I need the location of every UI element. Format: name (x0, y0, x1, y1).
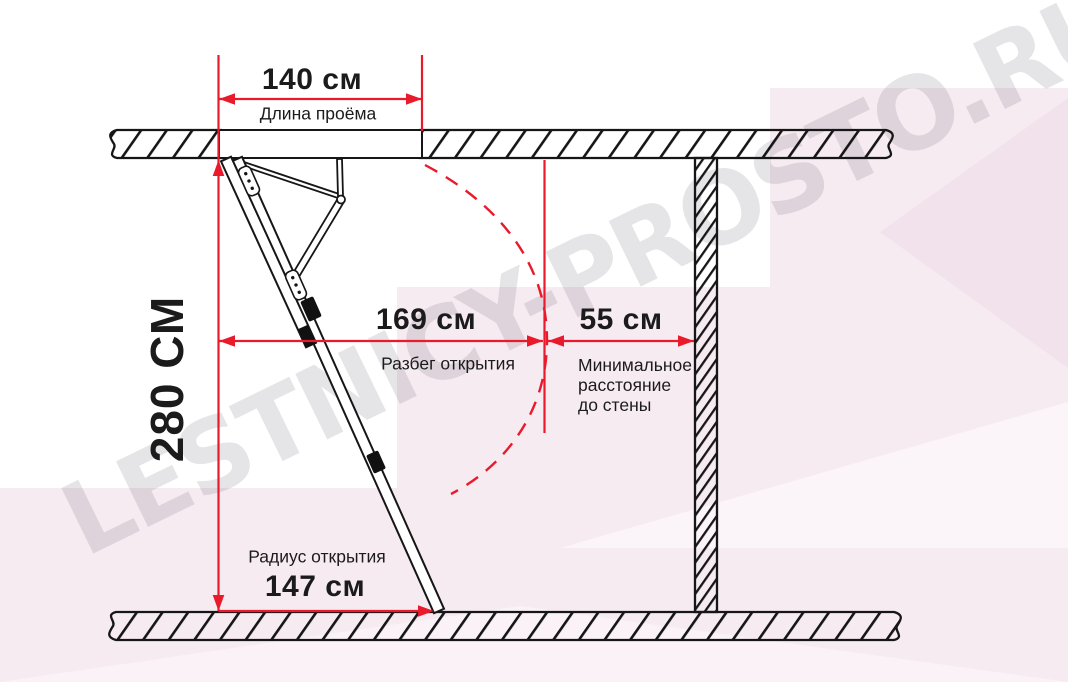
floor (109, 612, 901, 640)
dim-height-value: 280 СМ (140, 296, 194, 462)
wall (695, 158, 717, 612)
spring-strut (290, 198, 344, 282)
arrow-140-left (219, 93, 235, 105)
attic-ladder-dimensions-diagram: LESTNICY-PROSTO.RU (0, 0, 1068, 682)
arrow-280-down (213, 595, 225, 611)
folding-ladder (221, 157, 444, 614)
dim-run-label: Разбег открытия (381, 354, 515, 375)
dim-wall-clearance-label: Минимальное расстояние до стены (578, 355, 692, 415)
dim-opening-value: 140 см (262, 63, 362, 97)
arrow-169-right (527, 335, 543, 347)
arrow-140-right (406, 93, 422, 105)
wall-clearance-label-line1: Минимальное (578, 355, 692, 375)
arrow-169-left (219, 335, 235, 347)
ceiling-opening (219, 130, 422, 158)
wall-clearance-label-line3: до стены (578, 395, 692, 415)
dim-radius-value: 147 см (265, 570, 365, 604)
dim-radius-label: Радиус открытия (248, 547, 386, 568)
strut-joint-top (337, 196, 345, 204)
ceiling (110, 130, 893, 158)
arrow-55-right (678, 335, 694, 347)
hanger-rod (337, 159, 343, 196)
wall-clearance-label-line2: расстояние (578, 375, 692, 395)
dim-run-value: 169 см (376, 303, 476, 337)
ladder-rail-lower (232, 157, 444, 613)
dim-wall-clearance-value: 55 см (579, 303, 662, 337)
arrow-55-left (548, 335, 564, 347)
dim-opening-label: Длина проёма (260, 104, 377, 125)
